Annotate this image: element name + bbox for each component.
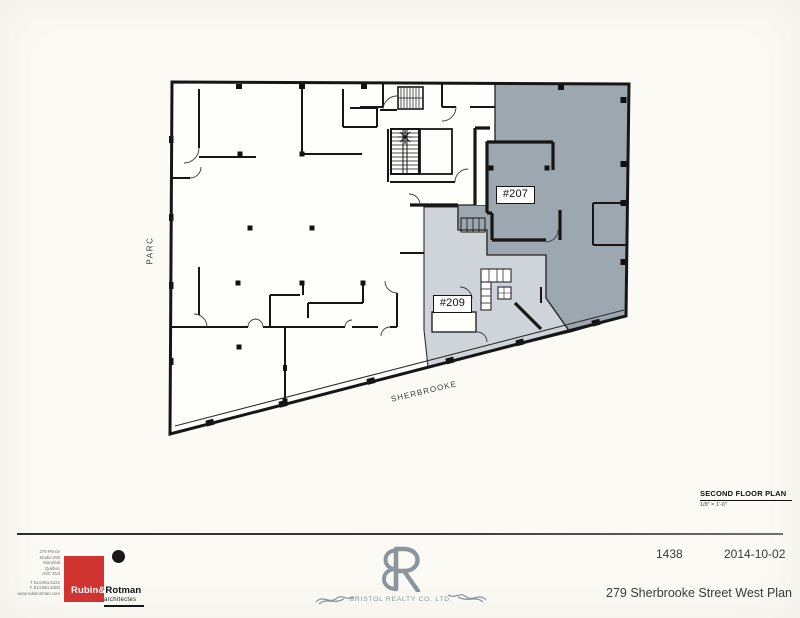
- sheet-date: 2014-10-02: [724, 547, 785, 561]
- architect-subtitle-bar: [104, 605, 144, 607]
- stair-star-symbol: [398, 130, 412, 144]
- realty-name: BRISTOL REALTY CO. LTD.: [338, 596, 464, 603]
- drawing-sheet: #207 #209 PARC SHERBROOKE SECOND FLOOR P…: [0, 0, 800, 618]
- titleblock-divider: [17, 533, 783, 535]
- plan-scale: 1/8" = 1'-0": [700, 502, 792, 508]
- architect-logo-dot-icon: [112, 550, 125, 563]
- parc-street-label: PARC: [146, 226, 155, 276]
- architect-name-last: Rotman: [105, 585, 141, 596]
- realty-monogram-icon: [366, 546, 428, 592]
- architect-name: Rubin&Rotman: [71, 585, 141, 596]
- sheet-title: 279 Sherbrooke Street West Plan: [606, 586, 792, 600]
- unit-207-label: #207: [496, 186, 535, 204]
- unit-209-label: #209: [433, 295, 472, 313]
- floor-plan-svg: [0, 0, 800, 618]
- plan-title: SECOND FLOOR PLAN: [700, 489, 792, 501]
- architect-address: 279 Prince Studio 250 Montréal Québec H3…: [14, 549, 60, 596]
- plan-note: SECOND FLOOR PLAN 1/8" = 1'-0": [700, 489, 792, 508]
- project-number: 1438: [656, 547, 683, 561]
- architect-subtitle: architectes: [104, 597, 136, 603]
- contact-line: www.rubinrotman.com: [14, 591, 60, 597]
- architect-name-first: Rubin&: [71, 585, 105, 596]
